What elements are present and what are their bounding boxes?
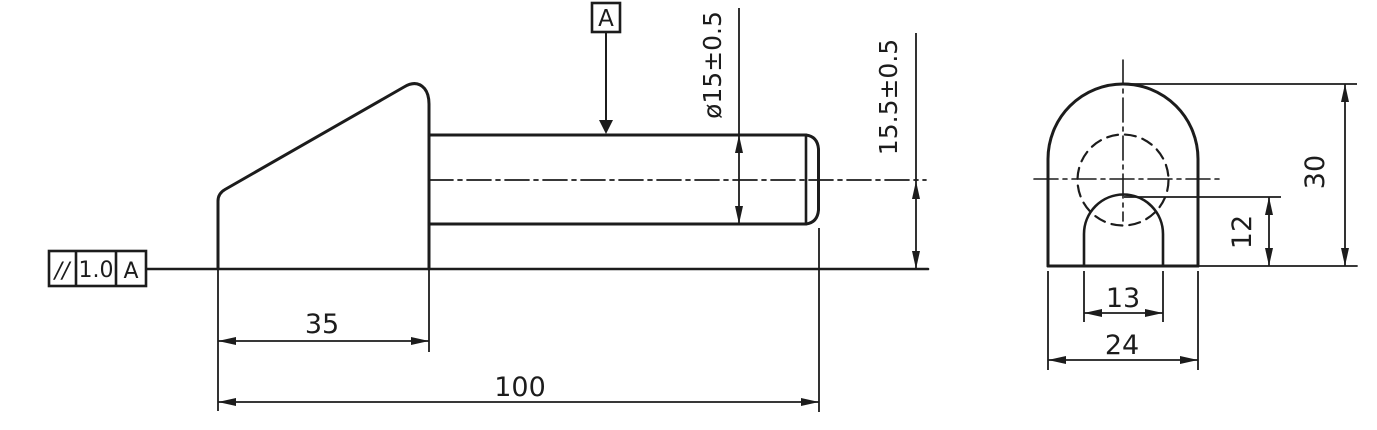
arrowhead-up-icon bbox=[1341, 84, 1349, 102]
dim-slot-depth: 12 bbox=[1124, 197, 1281, 266]
dim-text-shaft-diameter: ø15±0.5 bbox=[698, 11, 727, 119]
arrowhead-right-icon bbox=[411, 337, 429, 345]
datum-flag-label: A bbox=[598, 6, 614, 32]
wedge-outline bbox=[218, 84, 429, 269]
dim-slot-width: 13 bbox=[1084, 271, 1163, 322]
parallelism-symbol-icon: // bbox=[53, 259, 72, 284]
dim-text-overall-width: 24 bbox=[1105, 330, 1139, 361]
arrowhead-right-icon bbox=[1145, 309, 1163, 317]
side-view bbox=[147, 84, 928, 269]
dim-axis-height: 15.5±0.5 bbox=[874, 33, 920, 269]
datum-feature-symbol: A bbox=[592, 3, 620, 134]
dim-text-slot-width: 13 bbox=[1106, 283, 1140, 314]
dim-shaft-diameter: ø15±0.5 bbox=[698, 8, 743, 224]
arrowhead-down-icon bbox=[1341, 248, 1349, 266]
datum-triangle-icon bbox=[599, 120, 613, 134]
arrowhead-down-icon bbox=[1265, 248, 1273, 266]
arrowhead-left-icon bbox=[218, 337, 236, 345]
fcf-tolerance-value: 1.0 bbox=[79, 258, 114, 283]
dim-wedge-length: 35 bbox=[218, 309, 429, 345]
fcf-datum-ref: A bbox=[123, 259, 138, 284]
dim-text-axis-height: 15.5±0.5 bbox=[874, 39, 903, 155]
arrowhead-up-icon bbox=[912, 181, 920, 199]
drawing-sheet: A // 1.0 A ø15±0.5 15.5±0.5 35 bbox=[0, 0, 1377, 430]
arrowhead-up-icon bbox=[735, 135, 743, 153]
arrowhead-down-icon bbox=[912, 251, 920, 269]
arrowhead-left-icon bbox=[1084, 309, 1102, 317]
dim-text-slot-depth: 12 bbox=[1227, 215, 1258, 249]
dim-text-overall-length: 100 bbox=[494, 372, 546, 403]
dim-text-wedge-length: 35 bbox=[305, 309, 339, 340]
arrowhead-left-icon bbox=[1048, 356, 1066, 364]
dim-overall-length: 100 bbox=[218, 372, 819, 406]
arrowhead-left-icon bbox=[218, 398, 236, 406]
arrowhead-up-icon bbox=[1265, 197, 1273, 215]
engineering-drawing: A // 1.0 A ø15±0.5 15.5±0.5 35 bbox=[0, 0, 1377, 430]
arrowhead-right-icon bbox=[1180, 356, 1198, 364]
arrowhead-down-icon bbox=[735, 206, 743, 224]
feature-control-frame: // 1.0 A bbox=[49, 251, 146, 286]
dim-text-overall-height: 30 bbox=[1300, 155, 1331, 189]
arrowhead-right-icon bbox=[801, 398, 819, 406]
